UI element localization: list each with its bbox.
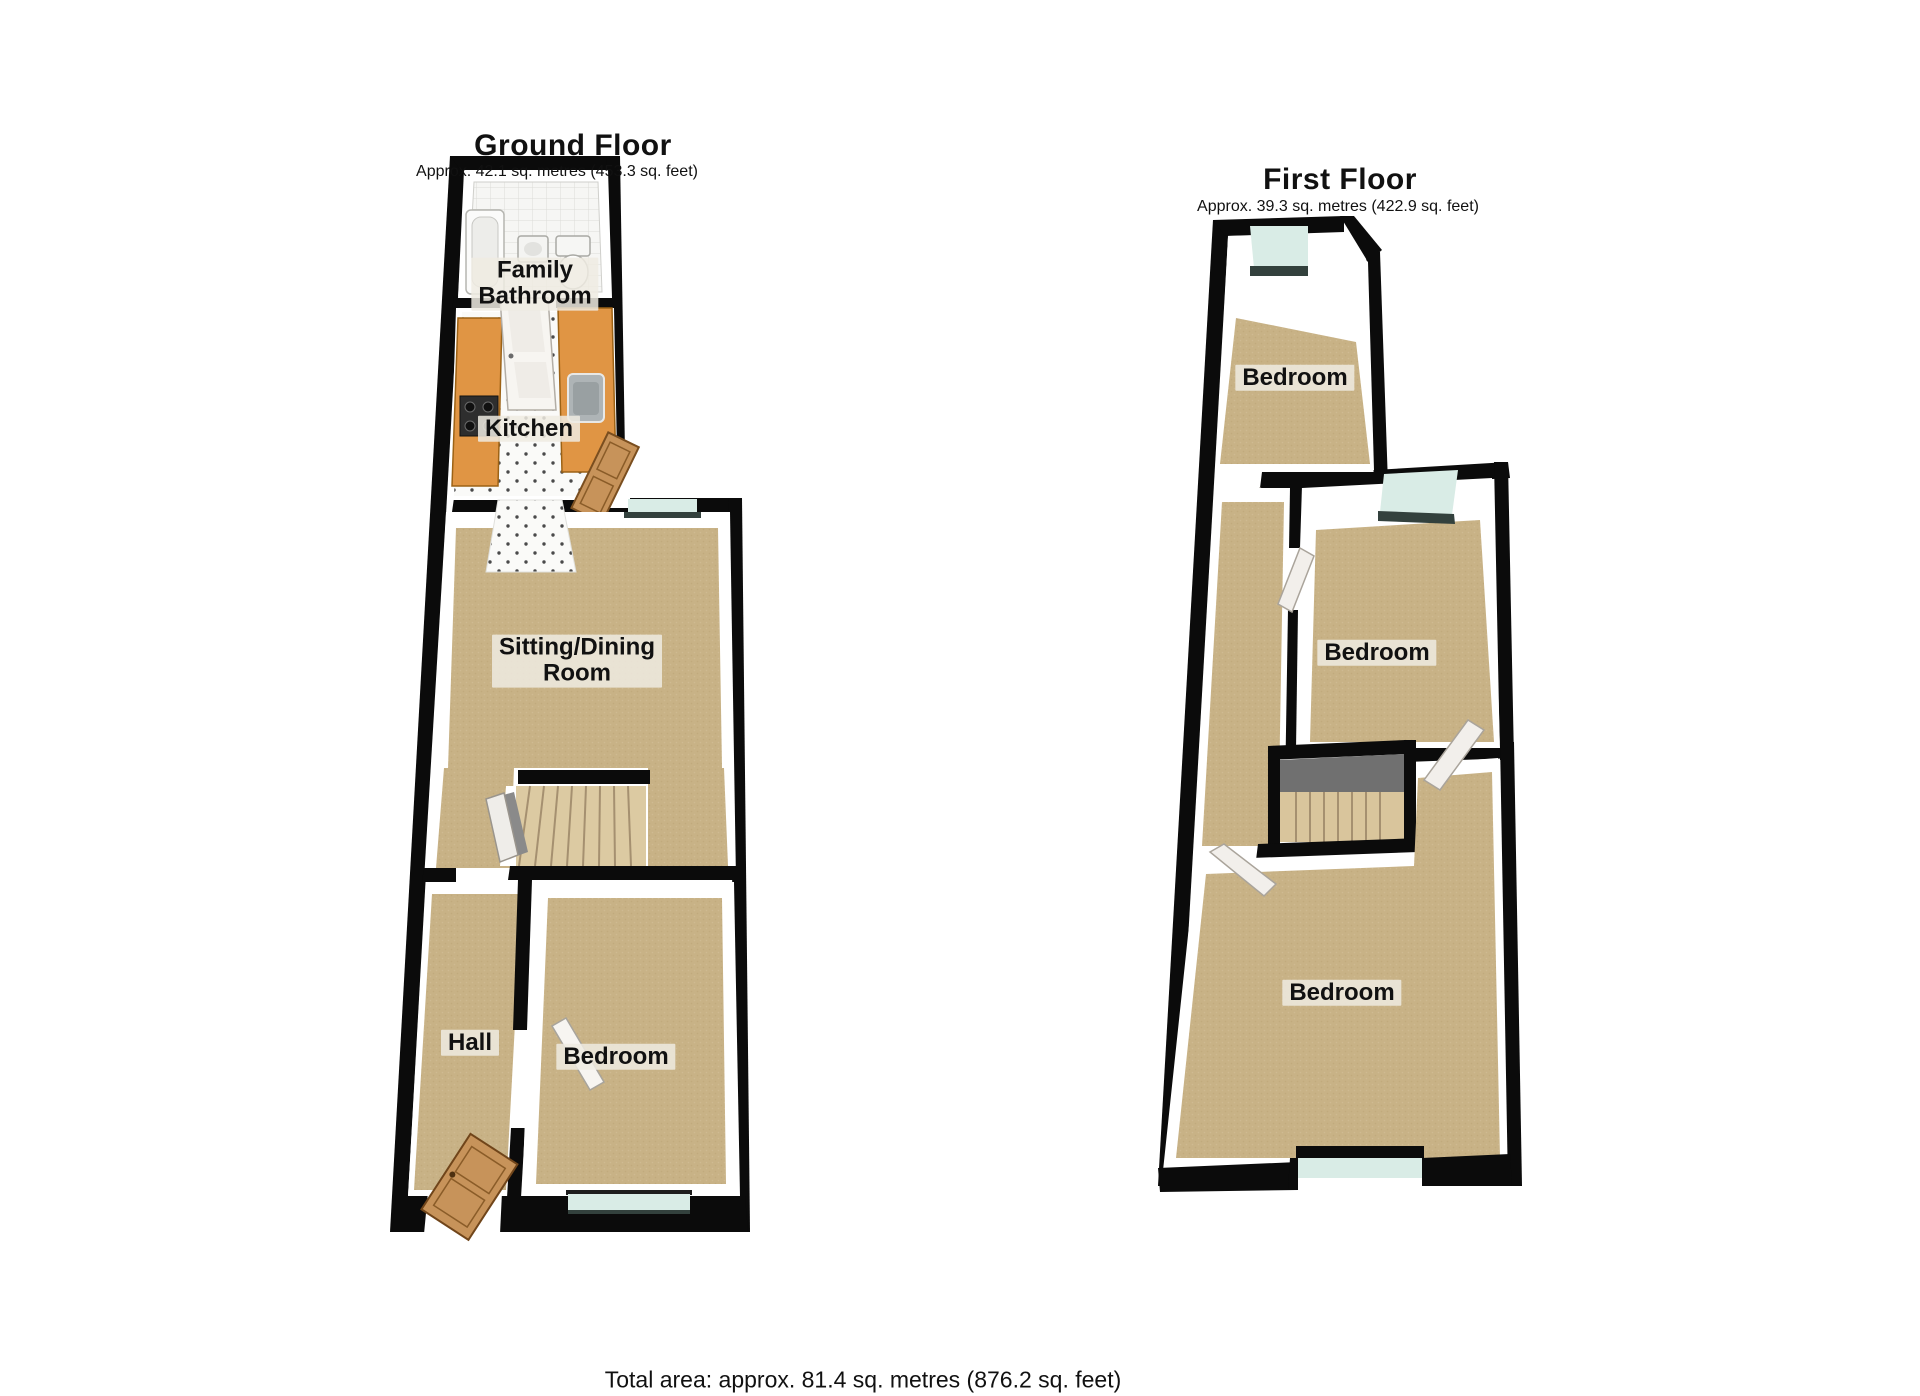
ground-floor-title: Ground Floor [474, 129, 672, 163]
first-floor-stairs [1256, 740, 1420, 860]
label-ground-bedroom: Bedroom [556, 1044, 675, 1070]
middle-bedroom-window [1378, 470, 1458, 524]
kitchen-room [450, 298, 639, 523]
top-bedroom-window [1250, 226, 1308, 276]
kitchen-sink-icon [568, 374, 604, 422]
sitting-room-window [624, 499, 701, 518]
first-floor-title: First Floor [1263, 163, 1417, 197]
label-first-bedroom-middle: Bedroom [1317, 640, 1436, 666]
total-area-text: Total area: approx. 81.4 sq. metres (876… [605, 1367, 1122, 1394]
label-first-bedroom-top: Bedroom [1235, 365, 1354, 391]
label-kitchen: Kitchen [478, 416, 580, 442]
ground-floor-subtitle: Approx. 42.1 sq. metres (453.3 sq. feet) [416, 163, 698, 181]
ground-floor-plan [390, 156, 750, 1240]
floor-plan-canvas [0, 0, 1920, 1396]
bay-window [566, 1190, 692, 1214]
label-hall: Hall [441, 1030, 499, 1056]
sitting-dining-room [422, 499, 742, 882]
label-first-bedroom-bottom: Bedroom [1282, 980, 1401, 1006]
bathroom-door [500, 298, 556, 410]
hall-room [408, 880, 532, 1240]
first-floor-subtitle: Approx. 39.3 sq. metres (422.9 sq. feet) [1197, 198, 1479, 216]
first-bedroom-middle [1278, 470, 1500, 748]
label-family-bathroom: Family Bathroom [471, 258, 598, 311]
label-sitting-dining: Sitting/Dining Room [492, 635, 662, 688]
first-floor-plan [1158, 216, 1522, 1192]
floorplan-page: { "ground_floor": { "title": "Ground Flo… [0, 0, 1920, 1396]
